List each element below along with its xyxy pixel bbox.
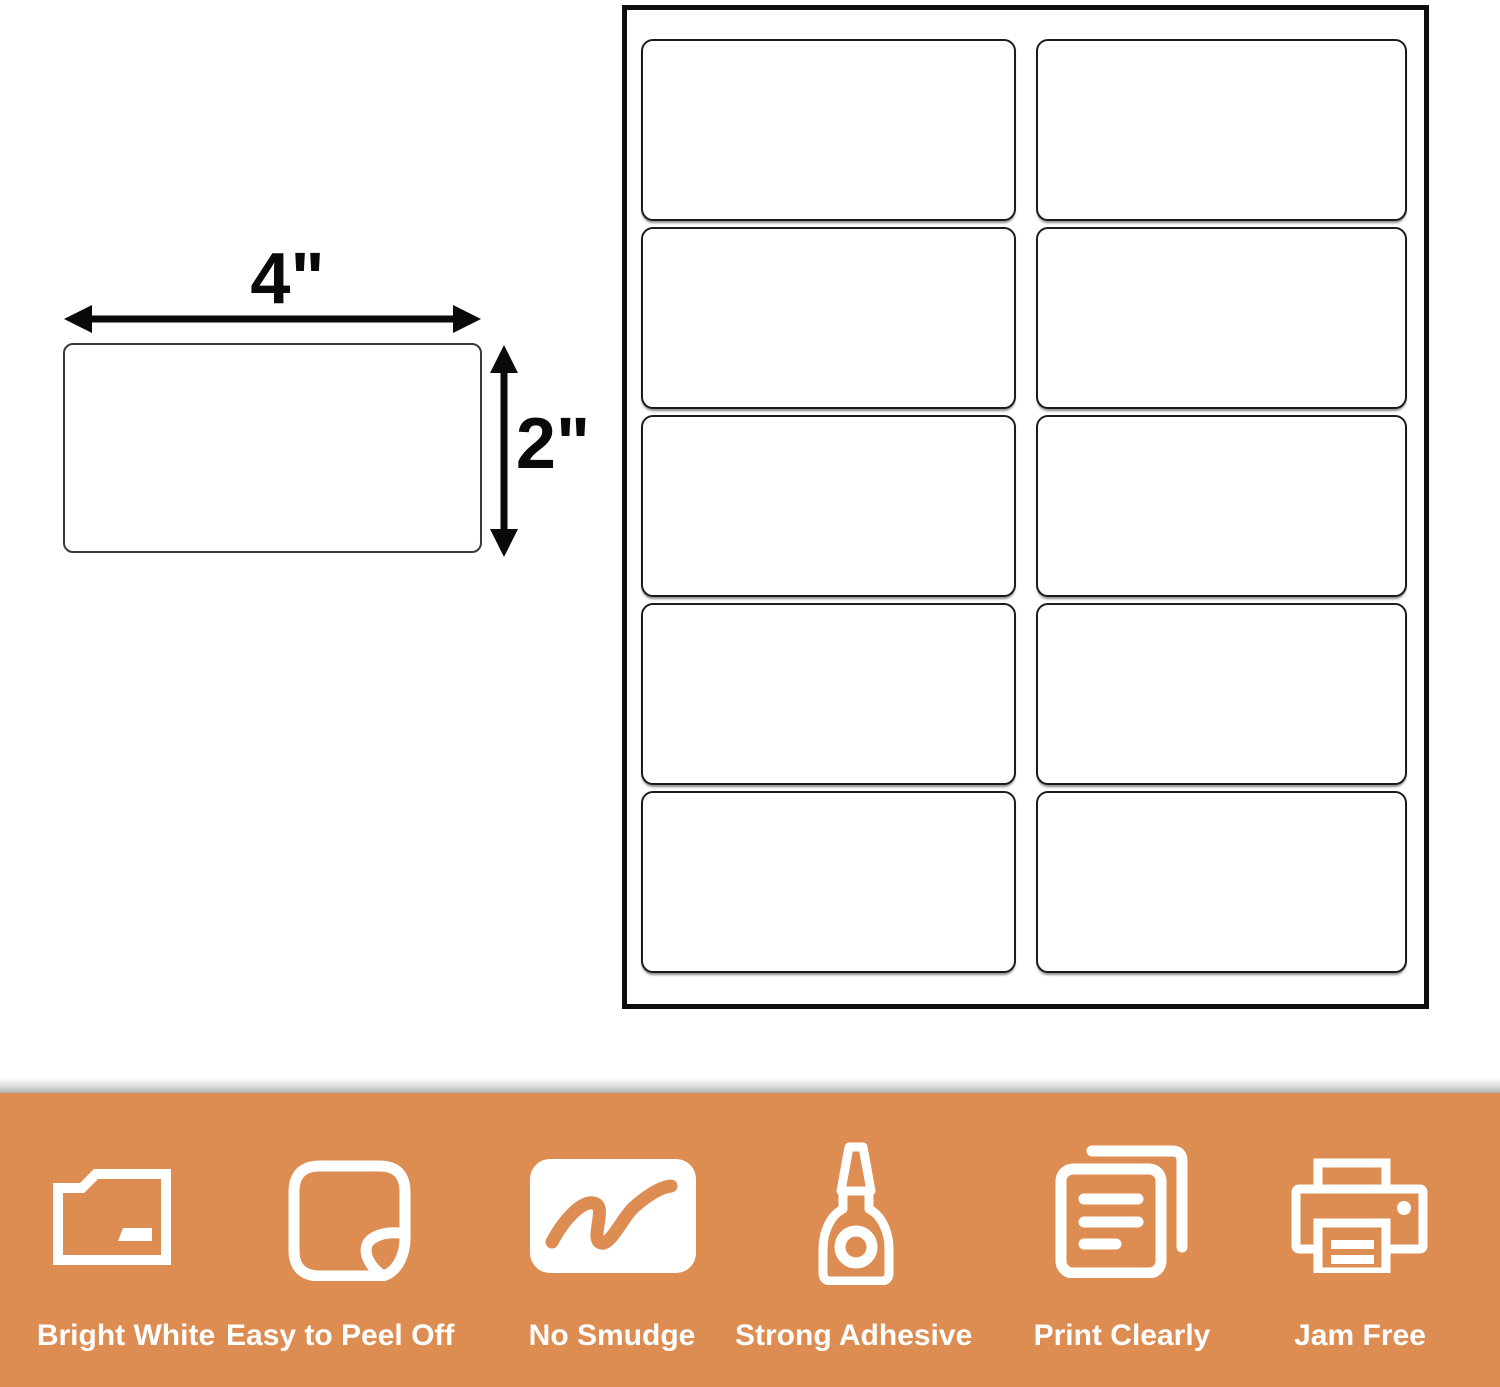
sheet-label-cell (1036, 603, 1407, 785)
feature-label: Jam Free (1250, 1318, 1470, 1354)
printer-icon (1291, 1153, 1428, 1273)
feature-label: Strong Adhesive (735, 1318, 955, 1354)
label-sheet (622, 5, 1429, 1009)
sticker-peel-icon (287, 1159, 414, 1281)
folder-icon (52, 1162, 172, 1266)
banner-top-shadow (0, 1078, 1500, 1093)
marker-scribble-icon (530, 1159, 696, 1273)
horizontal-dimension-arrow-icon (62, 299, 483, 339)
product-infographic: 4" 2" Bright White (0, 0, 1500, 1387)
sheet-label-cell (641, 791, 1016, 973)
feature-label: No Smudge (502, 1318, 722, 1354)
glue-bottle-icon (803, 1141, 909, 1285)
sheet-label-cell (641, 227, 1016, 409)
sheet-label-cell (1036, 39, 1407, 221)
feature-banner: Bright White Easy to Peel Off No Smudge … (0, 1093, 1500, 1387)
sheet-label-cell (641, 603, 1016, 785)
sheet-label-cell (641, 39, 1016, 221)
sheet-label-cell (1036, 791, 1407, 973)
feature-label: Bright White (6, 1318, 246, 1354)
single-label-outline (63, 343, 482, 553)
sheet-label-cell (1036, 227, 1407, 409)
sheet-label-cell (641, 415, 1016, 597)
sheet-label-cell (1036, 415, 1407, 597)
feature-label: Print Clearly (1012, 1318, 1232, 1354)
feature-label: Easy to Peel Off (226, 1318, 454, 1354)
documents-icon (1052, 1143, 1192, 1278)
height-dimension-label: 2" (493, 408, 613, 480)
